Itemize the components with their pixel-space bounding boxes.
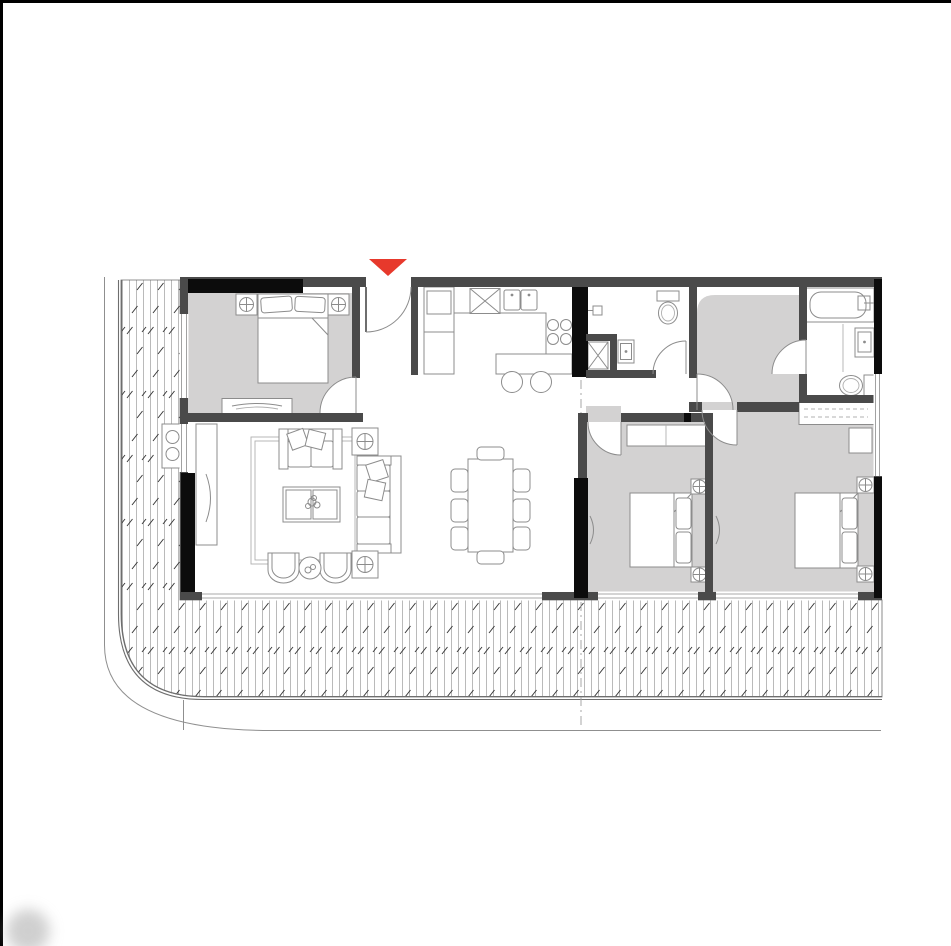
sofa-three-seat xyxy=(357,456,401,553)
wardrobe xyxy=(627,425,706,446)
page-border-top xyxy=(0,0,951,3)
bathtub-icon xyxy=(806,288,876,322)
pillow xyxy=(676,498,691,529)
pillow xyxy=(295,296,326,313)
bedroom-2-wall-top xyxy=(621,413,712,422)
window-bedroom-2-bottom xyxy=(598,592,698,601)
hallway xyxy=(697,295,806,410)
bedroom-3-wall-top xyxy=(737,402,799,412)
room-kitchen xyxy=(424,287,572,393)
desk xyxy=(849,428,872,453)
kitchen-wall-left xyxy=(411,287,418,375)
exterior-wall-right-black xyxy=(874,477,882,598)
dining-table xyxy=(468,459,513,552)
lamp-side-table xyxy=(352,428,378,455)
floor-plan-drawing xyxy=(0,0,951,946)
room-wc xyxy=(588,291,679,369)
cooktop-icon xyxy=(548,320,572,345)
pillow xyxy=(364,479,385,500)
window-bedroom-3-right xyxy=(874,408,883,476)
bedroom-2-wall-top-stub xyxy=(578,413,588,422)
double-basin-icon xyxy=(504,290,537,310)
exterior-wall-top-black xyxy=(184,279,303,293)
kitchen-sink-unit-icon xyxy=(470,289,500,314)
exterior-wall-left-black xyxy=(181,473,195,597)
entrance-marker-icon xyxy=(369,259,407,276)
armchair xyxy=(268,553,299,583)
dining-chair xyxy=(477,551,504,564)
pillow xyxy=(676,532,691,563)
armchair xyxy=(320,553,351,583)
toilet-icon xyxy=(840,375,875,396)
table-lamp-icon xyxy=(357,434,373,450)
kitchen-island xyxy=(496,354,572,374)
dining-chair xyxy=(451,469,468,492)
wardrobe-rail-icon xyxy=(799,403,874,425)
pillow xyxy=(842,498,857,529)
table-lamp-icon xyxy=(859,479,872,492)
pillow xyxy=(261,296,293,313)
toilet-icon xyxy=(657,291,679,324)
window-bedroom-3-bottom xyxy=(716,592,858,601)
bar-stool xyxy=(531,372,552,393)
window-bedroom-1-left xyxy=(180,314,189,398)
hallway-wall-stub xyxy=(689,402,702,412)
shower-icon xyxy=(588,342,608,369)
exterior-wall-top xyxy=(411,277,882,287)
dining-chair xyxy=(513,469,530,492)
washbasin-icon xyxy=(618,340,634,363)
shower-wall xyxy=(610,334,617,378)
window-living-left xyxy=(180,424,189,472)
room-bedroom-1 xyxy=(188,293,356,415)
dining-chair xyxy=(451,499,468,522)
sofa-two-seat xyxy=(279,428,342,469)
bedroom-1-wall-right xyxy=(352,287,360,378)
coffee-table xyxy=(283,487,340,522)
exterior-wall-right-black xyxy=(874,279,882,375)
table-lamp-icon xyxy=(693,568,706,581)
table-lamp-icon xyxy=(693,480,706,493)
wall-fixture xyxy=(588,306,602,315)
tv-console xyxy=(196,424,217,545)
table-lamp-icon xyxy=(357,557,373,573)
dresser xyxy=(222,399,292,415)
kitchen-wc-pier-black xyxy=(572,287,588,377)
door-jamb-black xyxy=(684,413,691,422)
bar-stool xyxy=(502,372,523,393)
pillow xyxy=(305,429,326,450)
bathroom-wall-left xyxy=(799,287,807,340)
pillow xyxy=(842,532,857,563)
bedroom-1-wall-bottom xyxy=(183,413,363,422)
wc-wall-right xyxy=(689,287,697,378)
room-dining xyxy=(451,447,530,564)
room-bedroom-3 xyxy=(702,402,874,592)
room-bathroom xyxy=(806,288,876,396)
dining-chair xyxy=(513,499,530,522)
table-lamp-icon xyxy=(859,568,872,581)
entrance-door xyxy=(366,287,411,332)
bedroom-2-wall-left xyxy=(578,422,587,478)
floor-plan-page xyxy=(0,0,951,946)
room-bedroom-2 xyxy=(586,406,708,592)
bedroom-2-wall-left-black xyxy=(574,478,588,598)
bedroom-2-threshold xyxy=(586,406,621,422)
bedroom-divider-wall xyxy=(705,413,713,593)
window-living-bottom xyxy=(202,592,542,601)
lamp-side-table xyxy=(352,551,378,578)
wc-wall-bottom xyxy=(586,370,656,378)
window-bathroom-right xyxy=(874,374,883,408)
washbasin-icon xyxy=(855,328,874,357)
side-round-table xyxy=(299,557,321,579)
counter-edge xyxy=(454,313,546,354)
wc-door xyxy=(653,341,686,374)
room-living xyxy=(162,424,401,583)
bathroom-wall-bottom xyxy=(799,395,882,403)
page-border-left xyxy=(0,0,3,946)
dining-chair xyxy=(513,527,530,550)
table-lamp-icon xyxy=(332,298,346,312)
kitchen-tall-unit xyxy=(424,287,454,374)
dining-chair xyxy=(477,447,504,460)
dining-chair xyxy=(451,527,468,550)
table-lamp-icon xyxy=(240,298,254,312)
